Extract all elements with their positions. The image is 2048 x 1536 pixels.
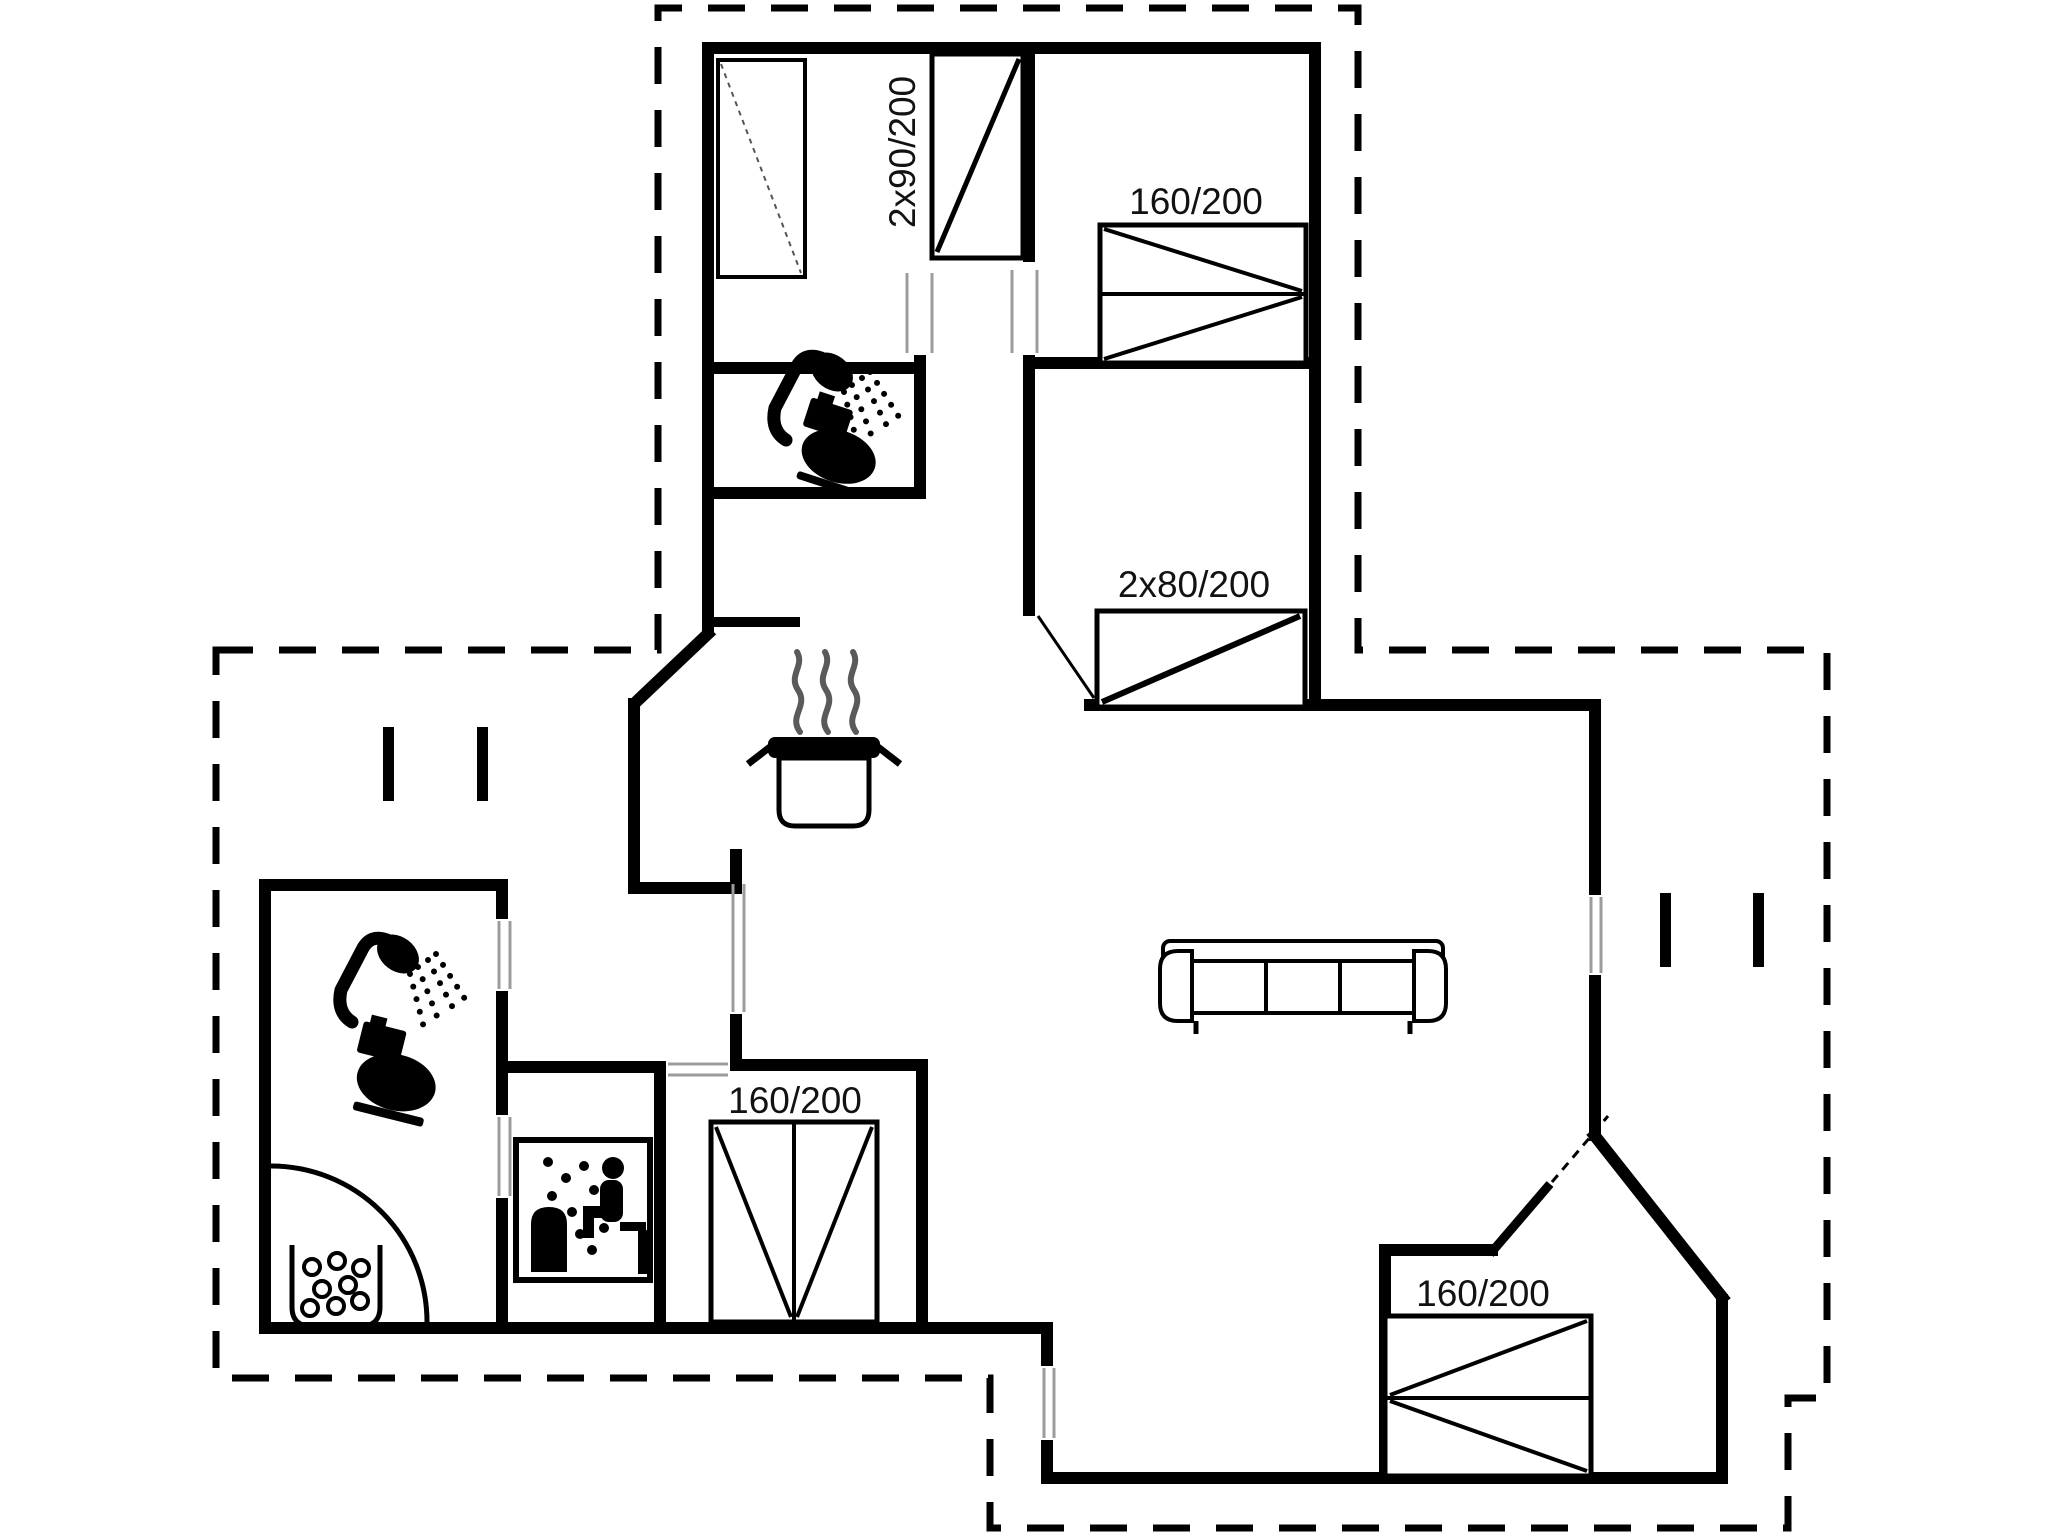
floor-plan-drawing: 2x90/200 160/200 2x80/200 160/200 160/20… — [0, 0, 2048, 1536]
wall-right-lower — [1589, 975, 1601, 1141]
steam-lines — [795, 652, 858, 732]
bunk-bed — [932, 54, 1023, 258]
wall-bath-top-bottom — [708, 487, 926, 499]
pot-body — [779, 758, 869, 826]
wall-left-top-block — [702, 42, 714, 634]
wall-sauna-top — [496, 1061, 666, 1073]
door-jamb-bedroom-middle — [733, 884, 744, 1012]
sauna-bench-seat — [620, 1222, 646, 1231]
wall-bath-east-low — [496, 1198, 508, 1334]
pot-rim — [768, 737, 880, 758]
window-living-east — [1591, 897, 1601, 973]
wall-right-upper — [1589, 699, 1601, 895]
terrace-post-right-2 — [1753, 893, 1764, 967]
wall-closet-west — [628, 698, 640, 894]
door-jamb-bedroom-middle-top — [668, 1064, 728, 1075]
wall-right-bottom — [1716, 1294, 1728, 1484]
sofa-cushion-3 — [1340, 961, 1414, 1013]
label-bunk-bed: 2x90/200 — [882, 76, 923, 228]
shower-spray — [410, 954, 465, 1028]
wall-diagonal-partition-br — [1490, 1184, 1550, 1254]
sauna-heater — [531, 1207, 567, 1272]
door-jamb-bath-left-upper — [499, 921, 510, 989]
toilet-icon-left — [343, 1013, 450, 1128]
label-bed-bottom-right: 160/200 — [1416, 1273, 1550, 1314]
stove-pot-icon — [748, 652, 900, 826]
double-bed-top-right — [1100, 225, 1306, 363]
toilet-icon-top — [786, 390, 892, 501]
double-bed-right — [1097, 611, 1305, 707]
wall-step-upper — [730, 849, 742, 882]
double-bed-bottom-right — [1385, 1316, 1591, 1476]
wall-hall-west-lower — [914, 355, 926, 499]
kitchen-counter-stub — [714, 617, 800, 627]
wall-bedroom-br-top — [1379, 1244, 1498, 1256]
wall-closet-bottom — [628, 882, 742, 894]
wall-diagonal-kitchen — [636, 630, 712, 702]
wall-bedroom-middle-east — [916, 1059, 928, 1334]
sofa-icon — [1160, 941, 1446, 1034]
wall-bath-east-mid — [496, 991, 508, 1115]
floor-plan-page: 2x90/200 160/200 2x80/200 160/200 160/20… — [0, 0, 2048, 1536]
wall-hall-east-lower — [1023, 355, 1035, 616]
wall-terrace-door-post-lower — [1041, 1440, 1053, 1478]
pot-handle-left — [748, 747, 770, 764]
label-bed-top-right: 160/200 — [1129, 181, 1263, 222]
whirlpool-bubbles — [302, 1253, 369, 1316]
sofa-cushion-2 — [1266, 961, 1340, 1013]
sauna-icon — [516, 1140, 650, 1280]
wall-right-top-block — [1309, 42, 1321, 711]
door-jamb-hall-east — [1012, 270, 1037, 353]
wall-bedroom-middle-top — [730, 1059, 928, 1071]
wall-sauna-east — [654, 1061, 666, 1334]
sofa-cushion-1 — [1192, 961, 1266, 1013]
pot-handle-right — [878, 747, 900, 764]
sofa-armrest-right — [1414, 951, 1446, 1021]
terrace-post-left-2 — [477, 727, 488, 801]
wall-diagonal-southeast — [1591, 1131, 1726, 1302]
terrace-post-left-1 — [383, 727, 394, 801]
sauna-person-head — [602, 1157, 624, 1179]
door-jamb-sauna-bath — [499, 1117, 510, 1196]
whirlpool-icon — [292, 1245, 380, 1326]
window-terrace-door — [1044, 1368, 1054, 1438]
label-bed-middle: 160/200 — [728, 1080, 862, 1121]
terrace-post-right-1 — [1660, 893, 1671, 967]
door-jamb-hall-west — [907, 273, 932, 353]
wall-bath-left-top — [259, 879, 502, 891]
door-leaf-bedroom-right — [1038, 616, 1094, 698]
sofa-armrest-left — [1160, 951, 1192, 1021]
wall-bath-left-west — [259, 879, 271, 1334]
double-bed-middle — [711, 1122, 877, 1322]
sauna-bench-leg — [638, 1230, 647, 1274]
wardrobe-icon — [718, 60, 805, 277]
label-bed-right: 2x80/200 — [1118, 564, 1270, 605]
shower-icon-left — [340, 926, 465, 1028]
wall-bath-east-post — [496, 879, 508, 919]
